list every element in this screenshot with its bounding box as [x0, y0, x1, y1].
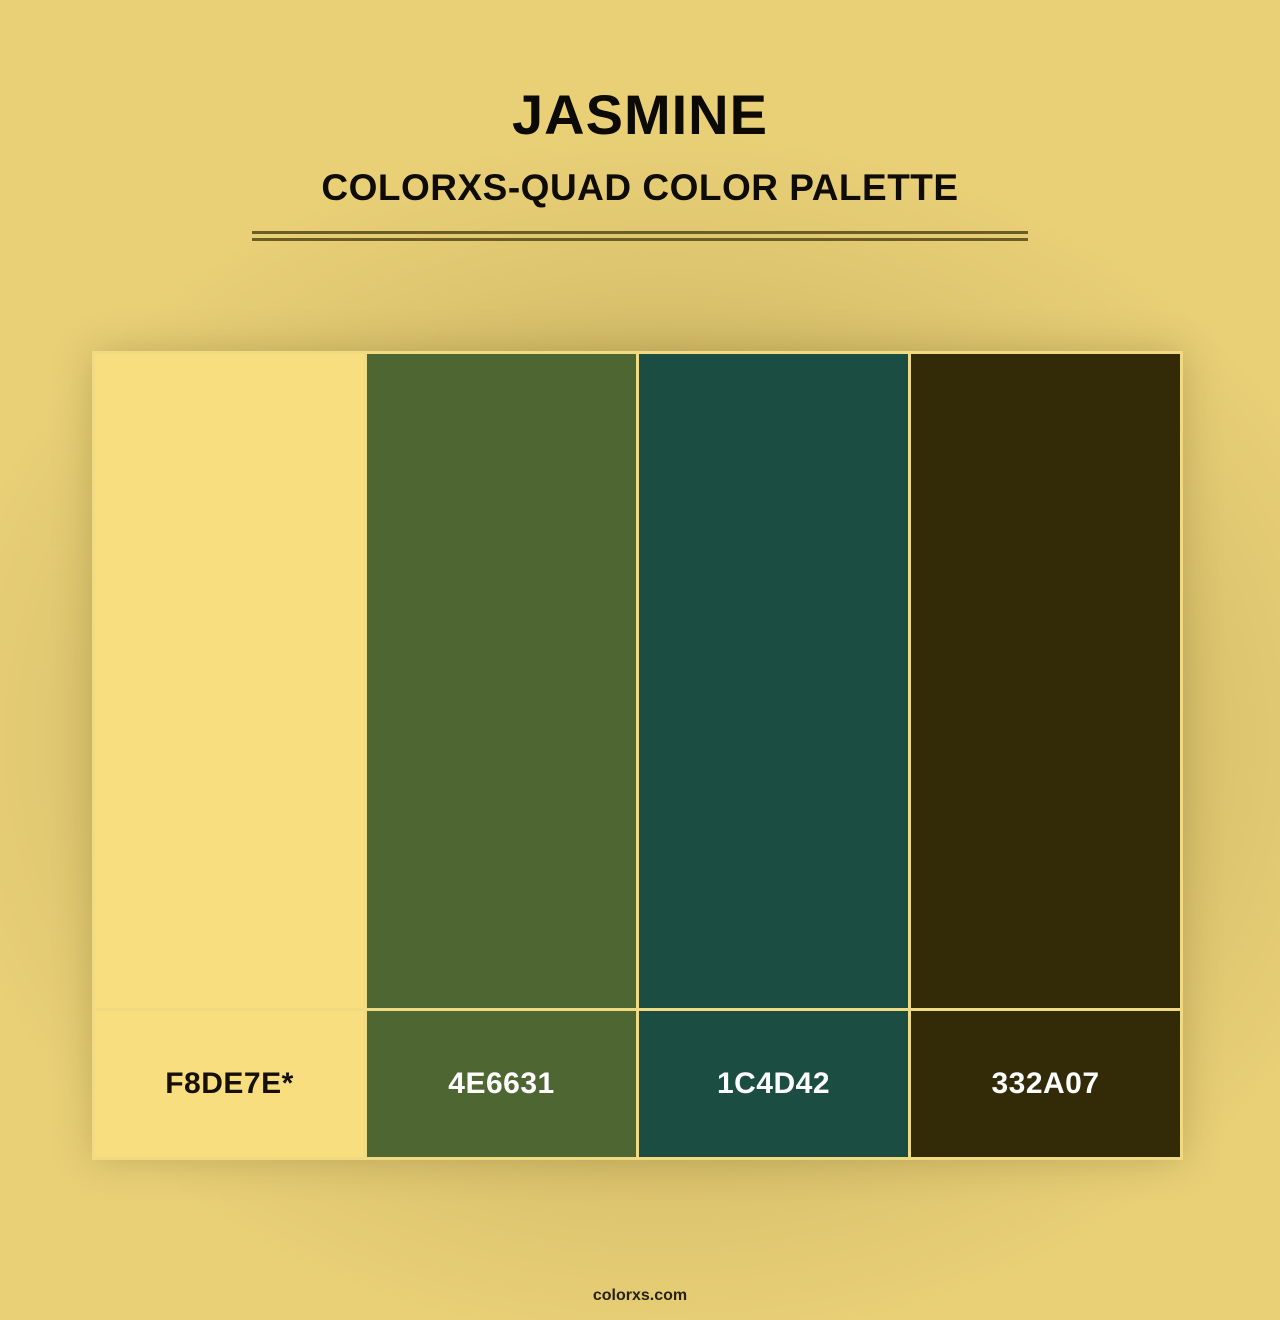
swatch-hex-label-2: 4E6631	[367, 1011, 636, 1157]
swatch-hex-label-1: F8DE7E*	[95, 1011, 364, 1157]
swatch-hex-label-4: 332A07	[911, 1011, 1180, 1157]
header-divider	[252, 231, 1028, 241]
swatch-color-1	[95, 354, 364, 1008]
swatch-color-2	[367, 354, 636, 1008]
footer-watermark: colorxs.com	[0, 1287, 1280, 1305]
swatch-color-3	[639, 354, 908, 1008]
palette-grid: F8DE7E* 4E6631 1C4D42 332A07	[92, 351, 1183, 1160]
palette-infographic: JASMINE COLORXS-QUAD COLOR PALETTE F8DE7…	[0, 0, 1280, 1320]
page-subtitle: COLORXS-QUAD COLOR PALETTE	[0, 167, 1280, 209]
page-title: JASMINE	[0, 82, 1280, 147]
swatch-hex-label-3: 1C4D42	[639, 1011, 908, 1157]
swatch-color-4	[911, 354, 1180, 1008]
